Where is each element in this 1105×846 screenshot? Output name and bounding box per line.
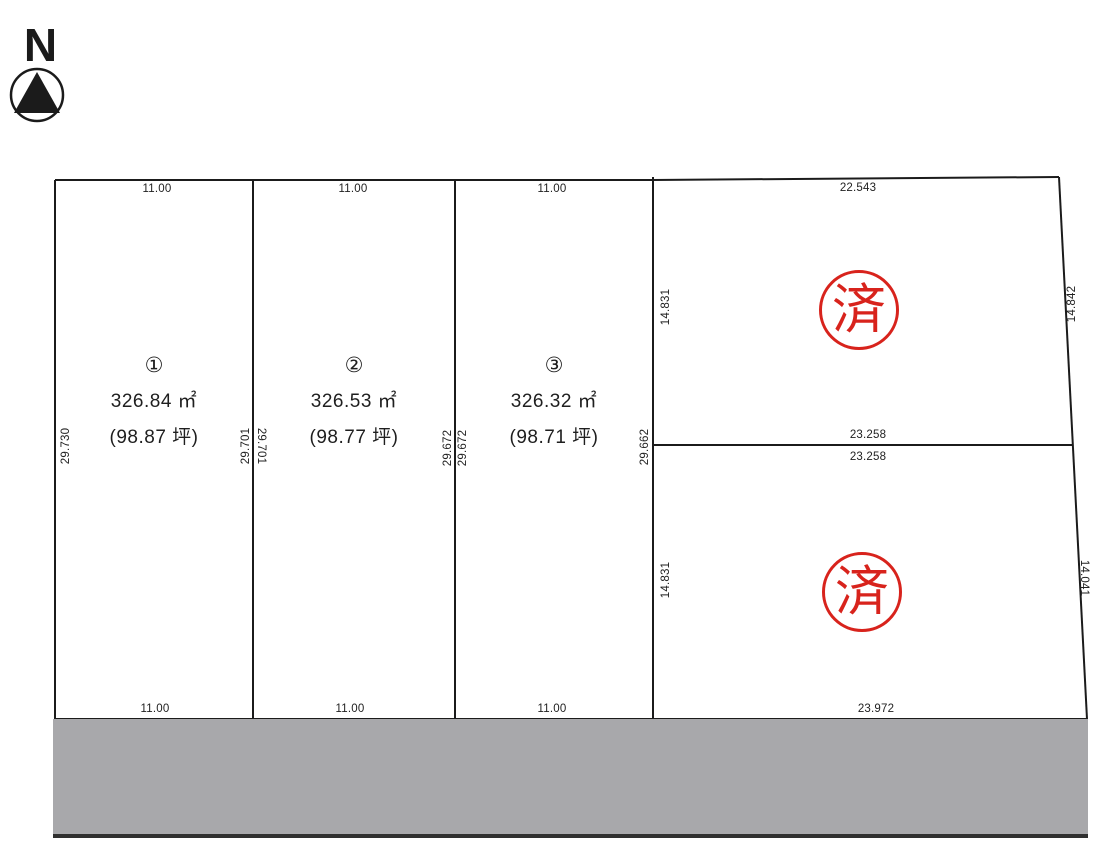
dim-mid-upper: 23.258 [850, 429, 886, 441]
dim-right-parcel-bottom: 23.972 [858, 703, 894, 715]
plot-2-area-tsubo: (98.77 坪) [310, 420, 399, 456]
plot-1-area-tsubo: (98.87 坪) [110, 420, 199, 456]
compass-icon [11, 69, 63, 121]
plot-1-label: ① 326.84 ㎡ (98.87 坪) [110, 348, 199, 456]
dim-mid-lower: 23.258 [850, 451, 886, 463]
dim-plot2-bottom: 11.00 [336, 703, 365, 715]
sold-stamp-lower: 済 [822, 552, 902, 632]
dim-right-lower: 14.041 [1078, 560, 1090, 596]
north-label: N [24, 18, 56, 72]
boundary-top-right [653, 177, 1059, 180]
dim-left-edge: 29.730 [60, 428, 72, 464]
plot-1-number: ① [110, 348, 199, 384]
boundary-right-slant [1059, 177, 1087, 719]
plot-3-area-tsubo: (98.71 坪) [510, 420, 599, 456]
dim-plot3-bottom: 11.00 [538, 703, 567, 715]
dim-div3: 29.662 [639, 429, 651, 465]
plot-3-number: ③ [510, 348, 599, 384]
plot-2-area-m2: 326.53 ㎡ [310, 384, 399, 420]
site-plan-drawing: N 11.00 11.00 11.00 22.543 11.00 11.00 1… [0, 0, 1105, 846]
dim-plot1-bottom: 11.00 [141, 703, 170, 715]
sold-stamp-upper: 済 [819, 270, 899, 350]
dim-div1-left: 29.701 [240, 428, 252, 464]
plot-2-label: ② 326.53 ㎡ (98.77 坪) [310, 348, 399, 456]
dim-right-parcel-top: 22.543 [840, 182, 876, 194]
dim-right-upper: 14.842 [1066, 286, 1078, 322]
dim-sub-left-lower: 14.831 [660, 562, 672, 598]
dim-plot2-top: 11.00 [339, 183, 368, 195]
plot-1-area-m2: 326.84 ㎡ [110, 384, 199, 420]
dim-sub-left-upper: 14.831 [660, 289, 672, 325]
dim-plot3-top: 11.00 [538, 183, 567, 195]
dim-plot1-top: 11.00 [143, 183, 172, 195]
plot-2-number: ② [310, 348, 399, 384]
dim-div2-right: 29.672 [457, 430, 469, 466]
dim-div1-right: 29.701 [255, 428, 267, 464]
plot-3-area-m2: 326.32 ㎡ [510, 384, 599, 420]
road-strip [53, 719, 1088, 838]
dim-div2-left: 29.672 [442, 430, 454, 466]
plot-3-label: ③ 326.32 ㎡ (98.71 坪) [510, 348, 599, 456]
